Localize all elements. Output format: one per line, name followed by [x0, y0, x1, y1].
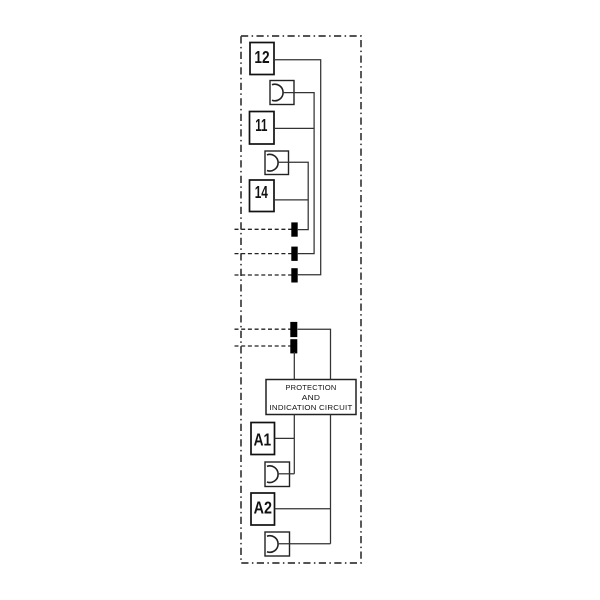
svg-text:INDICATION CIRCUIT: INDICATION CIRCUIT: [270, 403, 353, 412]
svg-text:PROTECTION: PROTECTION: [286, 383, 337, 392]
svg-text:AND: AND: [302, 393, 321, 402]
svg-text:14: 14: [255, 182, 268, 202]
svg-text:A2: A2: [254, 497, 273, 517]
svg-text:11: 11: [255, 115, 267, 135]
svg-text:12: 12: [254, 47, 269, 67]
svg-text:A1: A1: [254, 430, 272, 450]
